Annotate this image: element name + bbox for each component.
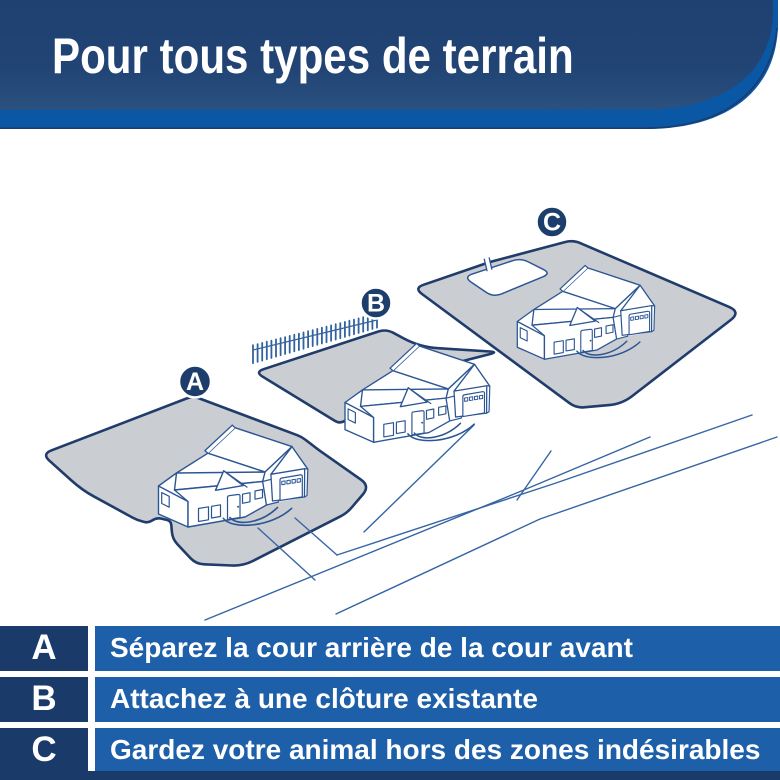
svg-text:C: C: [543, 209, 561, 237]
svg-text:B: B: [367, 290, 385, 318]
svg-text:A: A: [186, 368, 204, 396]
